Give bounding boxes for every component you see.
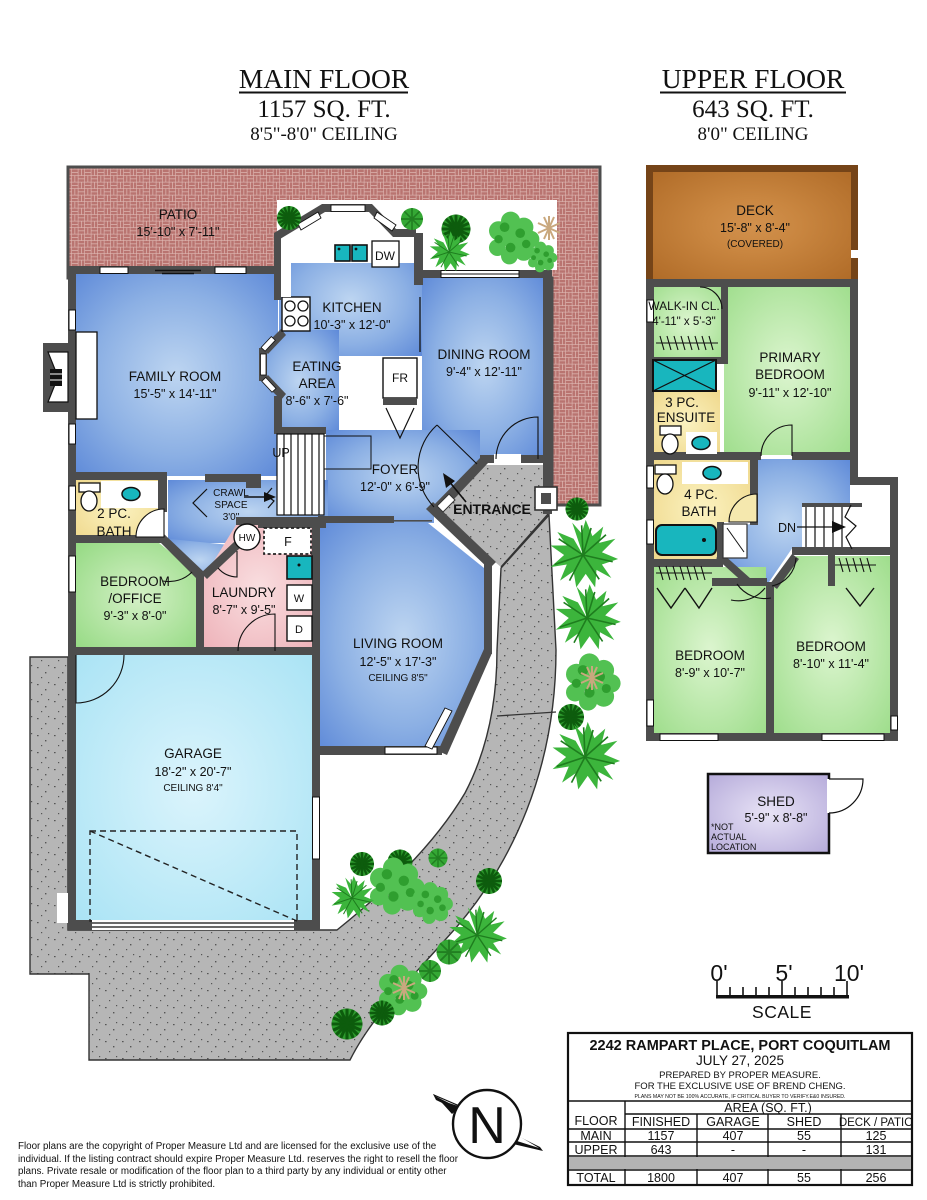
svg-text:125: 125: [866, 1129, 887, 1143]
svg-text:2242 RAMPART PLACE, PORT COQUI: 2242 RAMPART PLACE, PORT COQUITLAM: [589, 1038, 890, 1054]
svg-text:-: -: [802, 1143, 806, 1157]
svg-text:8'-6" x 7'-6": 8'-6" x 7'-6": [286, 394, 349, 408]
svg-text:GARAGE: GARAGE: [164, 746, 222, 761]
svg-text:3 PC.: 3 PC.: [665, 395, 699, 410]
svg-text:PATIO: PATIO: [159, 207, 198, 222]
svg-text:F: F: [284, 535, 292, 549]
svg-text:10'-3" x 12'-0": 10'-3" x 12'-0": [314, 318, 391, 332]
svg-text:SHED: SHED: [787, 1115, 822, 1129]
svg-text:EATING: EATING: [292, 359, 341, 374]
svg-text:UPPER FLOOR: UPPER FLOOR: [662, 63, 845, 94]
svg-text:8'0" CEILING: 8'0" CEILING: [698, 124, 809, 145]
svg-text:CRAWL: CRAWL: [213, 488, 249, 499]
svg-text:8'5"-8'0" CEILING: 8'5"-8'0" CEILING: [250, 124, 398, 145]
svg-text:FR: FR: [392, 371, 408, 385]
svg-text:10': 10': [834, 960, 864, 986]
svg-text:55: 55: [797, 1129, 811, 1143]
svg-text:AREA (SQ. FT.): AREA (SQ. FT.): [724, 1101, 812, 1115]
svg-text:15'-8" x 8'-4": 15'-8" x 8'-4": [720, 221, 790, 235]
svg-text:BATH: BATH: [96, 524, 131, 539]
svg-text:643: 643: [651, 1143, 672, 1157]
svg-text:9'-11" x 12'-10": 9'-11" x 12'-10": [749, 386, 832, 400]
svg-text:55: 55: [797, 1171, 811, 1185]
svg-text:1157 SQ. FT.: 1157 SQ. FT.: [257, 96, 390, 123]
svg-text:BEDROOM: BEDROOM: [755, 367, 825, 382]
svg-text:PRIMARY: PRIMARY: [759, 350, 820, 365]
svg-text:KITCHEN: KITCHEN: [322, 300, 381, 315]
svg-text:FLOOR: FLOOR: [574, 1114, 617, 1128]
svg-text:FOR THE EXCLUSIVE USE OF BREND: FOR THE EXCLUSIVE USE OF BREND CHENG.: [635, 1081, 846, 1092]
svg-text:2 PC.: 2 PC.: [97, 506, 131, 521]
svg-text:plans. Private resale or modi: plans. Private resale or modification of…: [18, 1166, 447, 1177]
svg-text:12'-5" x 17'-3": 12'-5" x 17'-3": [360, 655, 437, 669]
svg-text:8'-9" x 10'-7": 8'-9" x 10'-7": [675, 666, 745, 680]
svg-text:Floor plans are the copyright: Floor plans are the copyright of Proper …: [18, 1141, 437, 1152]
svg-text:individual. If the listing co: individual. If the listing contract shou…: [18, 1154, 459, 1165]
svg-text:LOCATION: LOCATION: [711, 842, 756, 852]
svg-text:5'-9" x 8'-8": 5'-9" x 8'-8": [745, 811, 808, 825]
svg-text:407: 407: [723, 1129, 744, 1143]
svg-text:LAUNDRY: LAUNDRY: [212, 585, 276, 600]
svg-text:UPPER: UPPER: [574, 1143, 617, 1157]
svg-text:HW: HW: [239, 533, 256, 544]
svg-text:JULY 27, 2025: JULY 27, 2025: [696, 1053, 784, 1068]
svg-text:PREPARED BY PROPER MEASURE.: PREPARED BY PROPER MEASURE.: [659, 1070, 821, 1081]
svg-text:1157: 1157: [648, 1129, 675, 1143]
svg-text:AREA: AREA: [299, 376, 336, 391]
svg-text:/OFFICE: /OFFICE: [108, 591, 161, 606]
svg-text:GARAGE: GARAGE: [706, 1115, 760, 1129]
svg-text:FOYER: FOYER: [372, 462, 419, 477]
svg-text:131: 131: [866, 1143, 887, 1157]
svg-text:W: W: [294, 593, 305, 605]
svg-text:MAIN: MAIN: [580, 1129, 611, 1143]
svg-text:4 PC.: 4 PC.: [684, 487, 718, 502]
svg-text:12'-0" x 6'-9": 12'-0" x 6'-9": [360, 480, 430, 494]
svg-text:DW: DW: [375, 249, 396, 263]
svg-text:(COVERED): (COVERED): [727, 239, 783, 250]
svg-text:CEILING 8'5": CEILING 8'5": [368, 673, 428, 684]
svg-text:256: 256: [866, 1171, 887, 1185]
svg-text:ENSUITE: ENSUITE: [657, 410, 716, 425]
svg-text:FINISHED: FINISHED: [632, 1115, 690, 1129]
svg-text:BEDROOM: BEDROOM: [796, 639, 866, 654]
svg-text:18'-2" x 20'-7": 18'-2" x 20'-7": [155, 765, 232, 779]
svg-text:4'-11" x 5'-3": 4'-11" x 5'-3": [652, 316, 715, 328]
svg-text:ENTRANCE: ENTRANCE: [453, 501, 531, 517]
svg-text:-: -: [731, 1143, 735, 1157]
svg-text:1800: 1800: [647, 1171, 675, 1185]
svg-text:FAMILY ROOM: FAMILY ROOM: [129, 369, 222, 384]
svg-text:SCALE: SCALE: [752, 1002, 812, 1022]
svg-text:5': 5': [775, 960, 792, 986]
svg-text:SPACE: SPACE: [214, 500, 247, 511]
svg-text:LIVING ROOM: LIVING ROOM: [353, 636, 443, 651]
svg-text:8'-10" x 11'-4": 8'-10" x 11'-4": [793, 657, 869, 671]
svg-text:SHED: SHED: [757, 794, 795, 809]
svg-text:TOTAL: TOTAL: [576, 1171, 615, 1185]
svg-text:8'-7" x 9'-5": 8'-7" x 9'-5": [213, 603, 276, 617]
svg-text:DECK: DECK: [736, 203, 774, 218]
svg-text:15'-10" x 7'-11": 15'-10" x 7'-11": [137, 225, 220, 239]
svg-text:D: D: [295, 624, 303, 636]
svg-text:DN: DN: [778, 521, 796, 535]
svg-text:CEILING 8'4": CEILING 8'4": [163, 783, 223, 794]
svg-text:PLANS MAY NOT BE 100% ACCURATE: PLANS MAY NOT BE 100% ACCURATE, IF CRITI…: [634, 1094, 845, 1100]
svg-text:than Proper Measure Ltd is str: than Proper Measure Ltd is strictly proh…: [18, 1179, 215, 1190]
svg-text:MAIN FLOOR: MAIN FLOOR: [239, 63, 410, 94]
svg-text:BATH: BATH: [681, 504, 716, 519]
svg-text:15'-5" x 14'-11": 15'-5" x 14'-11": [134, 387, 217, 401]
svg-text:3'0": 3'0": [223, 512, 240, 523]
svg-text:BEDROOM: BEDROOM: [675, 648, 745, 663]
svg-text:DINING ROOM: DINING ROOM: [438, 347, 531, 362]
svg-text:BEDROOM: BEDROOM: [100, 574, 170, 589]
svg-text:*NOT: *NOT: [711, 822, 734, 832]
svg-text:0': 0': [710, 960, 727, 986]
svg-text:9'-3" x 8'-0": 9'-3" x 8'-0": [104, 609, 167, 623]
svg-text:9'-4" x 12'-11": 9'-4" x 12'-11": [446, 365, 522, 379]
svg-text:N: N: [468, 1097, 506, 1155]
svg-text:UP: UP: [272, 446, 289, 460]
svg-text:ACTUAL: ACTUAL: [711, 832, 747, 842]
svg-text:407: 407: [723, 1171, 744, 1185]
svg-text:WALK-IN CL.: WALK-IN CL.: [648, 299, 720, 313]
svg-text:DECK / PATIO: DECK / PATIO: [839, 1117, 913, 1129]
svg-text:643 SQ. FT.: 643 SQ. FT.: [692, 96, 814, 123]
